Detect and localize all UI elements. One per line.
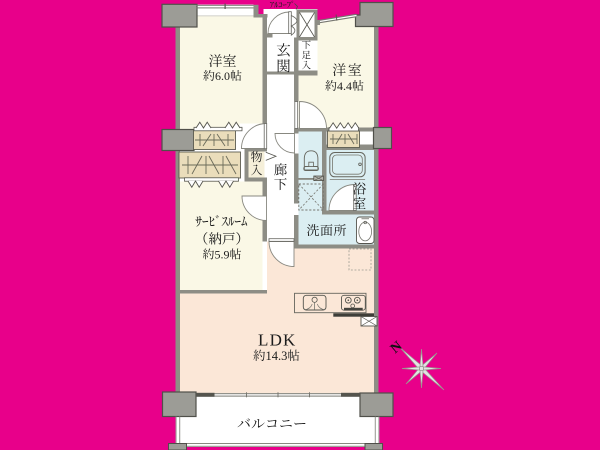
svg-text:5.9: 5.9 xyxy=(215,248,230,262)
svg-text:4.4: 4.4 xyxy=(337,79,352,93)
svg-text:14.3: 14.3 xyxy=(266,349,288,363)
svg-text:6.0: 6.0 xyxy=(215,69,230,83)
svg-text:LDK: LDK xyxy=(258,331,297,350)
